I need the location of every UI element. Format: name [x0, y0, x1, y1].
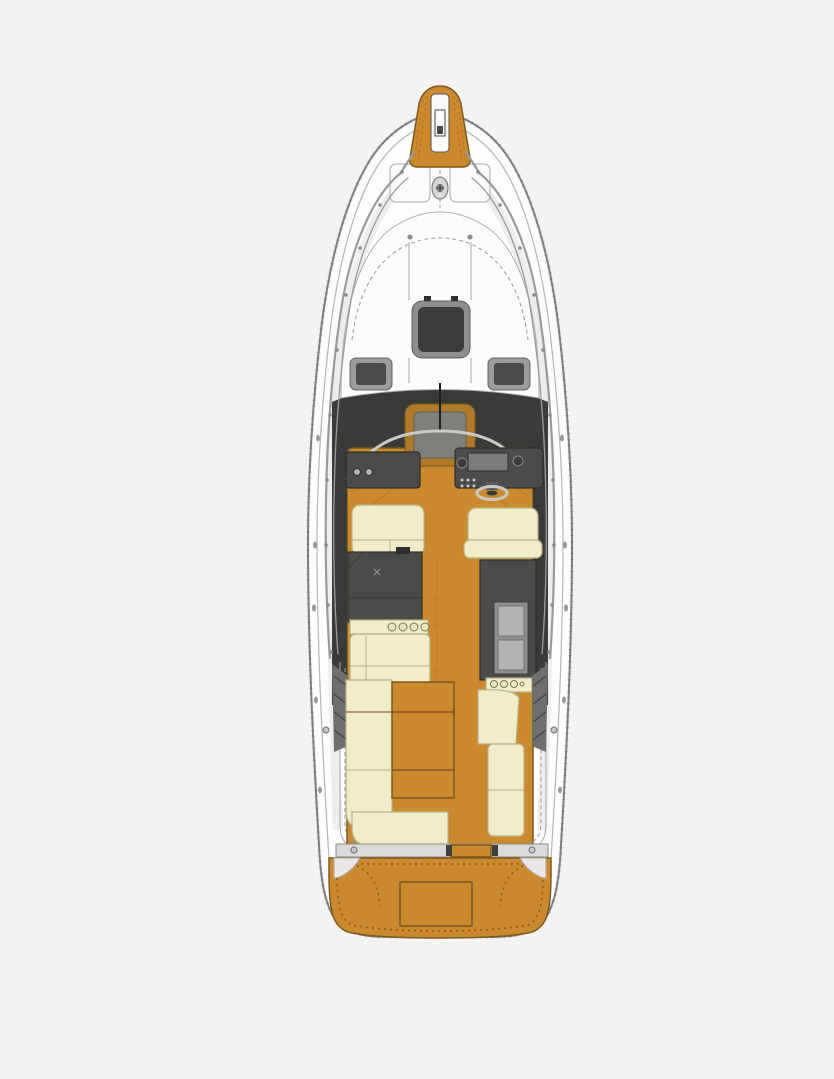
helm-seat — [464, 508, 542, 558]
gate-hinge-left — [446, 845, 452, 856]
table-handle — [396, 547, 410, 554]
anchor-locker — [431, 94, 449, 152]
roof-hatch-port — [350, 358, 392, 390]
cabinet-knob-2 — [366, 469, 373, 476]
helm-speaker-left — [457, 458, 467, 468]
sunpad-button-starboard — [468, 235, 473, 240]
settee-starboard-upper — [478, 690, 519, 744]
boat-plan-canvas: Motor yacht main deck plan - overhead vi… — [0, 0, 834, 1079]
cabinet-knob-1 — [354, 469, 361, 476]
foredeck-hatch-port — [390, 164, 430, 202]
stern-cleat-port — [351, 847, 357, 853]
foredeck-hatch-starboard — [450, 164, 490, 202]
boat-plan: Motor yacht main deck plan - overhead vi… — [0, 0, 834, 1079]
dinette-table — [348, 547, 422, 622]
skylight-hatch — [412, 296, 470, 358]
helm-speaker-right — [513, 456, 523, 466]
skylight-hinge-left — [424, 296, 431, 301]
fridge — [494, 602, 528, 674]
roof-hatch-starboard — [488, 358, 530, 390]
helm-console — [455, 448, 543, 488]
cockpit-table — [392, 682, 454, 798]
transom-gate-walkway — [451, 845, 491, 857]
settee-starboard-lower — [488, 744, 524, 836]
helm-screen — [468, 453, 508, 471]
sunpad-button-port — [408, 235, 413, 240]
transom-beam — [336, 844, 548, 857]
copilot-bench — [352, 505, 424, 555]
swim-platform — [329, 858, 551, 938]
gate-hinge-right — [492, 845, 498, 856]
skylight-hinge-right — [451, 296, 458, 301]
stern-cleat-starboard — [529, 847, 535, 853]
settee-port — [346, 680, 392, 828]
settee-aft — [352, 812, 448, 846]
stern: Teak swim platform with storage hatch — [329, 844, 551, 938]
galley-starboard — [480, 560, 536, 692]
